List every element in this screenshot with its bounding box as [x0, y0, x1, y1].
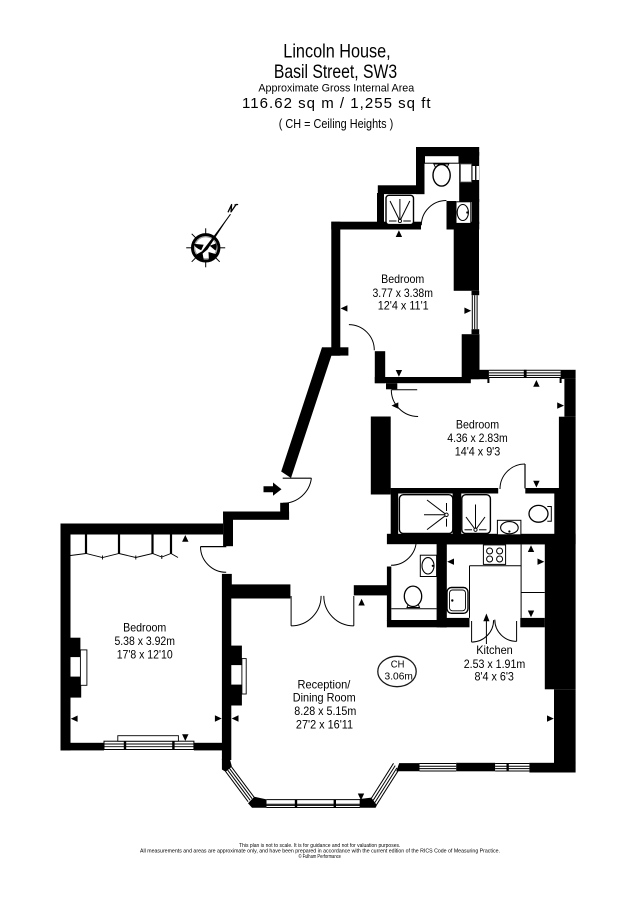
svg-text:Dining Room: Dining Room — [293, 691, 356, 705]
svg-text:Bedroom: Bedroom — [456, 418, 499, 432]
svg-text:Bedroom: Bedroom — [381, 272, 424, 286]
svg-text:Lincoln House,: Lincoln House, — [283, 41, 390, 63]
svg-text:Kitchen: Kitchen — [476, 643, 513, 657]
svg-text:17'8 x 12'10: 17'8 x 12'10 — [117, 648, 173, 662]
svg-text:116.62 sq m / 1,255 sq ft: 116.62 sq m / 1,255 sq ft — [242, 95, 431, 112]
svg-text:5.38 x 3.92m: 5.38 x 3.92m — [114, 634, 175, 648]
svg-text:27'2 x 16'11: 27'2 x 16'11 — [296, 717, 353, 731]
svg-text:8.28 x 5.15m: 8.28 x 5.15m — [294, 704, 356, 718]
svg-text:Basil Street, SW3: Basil Street, SW3 — [274, 61, 397, 83]
svg-text:4.36 x 2.83m: 4.36 x 2.83m — [447, 431, 508, 445]
svg-text:14'4 x 9'3: 14'4 x 9'3 — [455, 445, 501, 459]
svg-text:8'4 x 6'3: 8'4 x 6'3 — [474, 669, 514, 683]
svg-text:( CH = Ceiling Heights ): ( CH = Ceiling Heights ) — [279, 117, 394, 131]
svg-text:CH: CH — [391, 660, 405, 671]
svg-text:Bedroom: Bedroom — [123, 620, 166, 634]
svg-text:Approximate Gross Internal Are: Approximate Gross Internal Area — [258, 82, 415, 94]
svg-text:12'4 x 11'1: 12'4 x 11'1 — [378, 299, 429, 313]
svg-text:3.06m: 3.06m — [385, 671, 413, 682]
svg-text:© Fulham Performance: © Fulham Performance — [298, 853, 341, 860]
